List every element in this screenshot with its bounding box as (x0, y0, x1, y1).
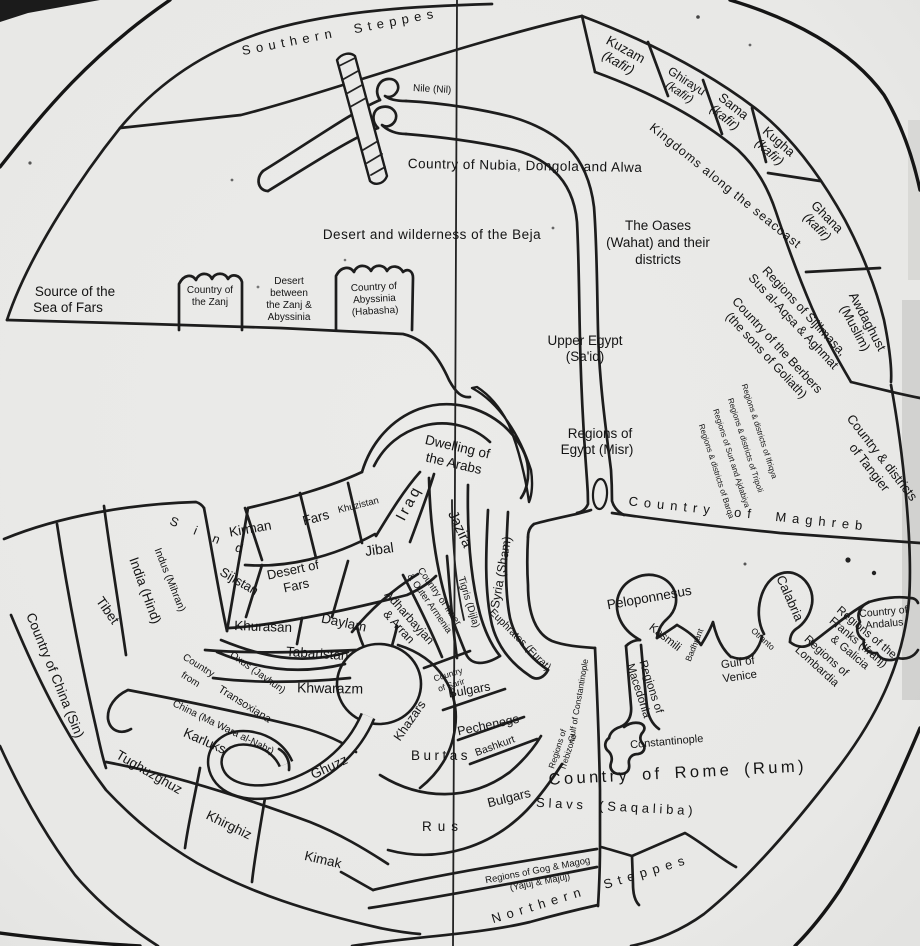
svg-text:Rus: Rus (422, 819, 464, 834)
svg-text:Regions ofEgypt (Misr): Regions ofEgypt (Misr) (561, 426, 634, 457)
svg-text:Country ofthe Zanj: Country ofthe Zanj (187, 285, 233, 308)
svg-text:Burtas: Burtas (411, 748, 471, 763)
svg-text:Country ofAbyssinia(Habasha): Country ofAbyssinia(Habasha) (350, 281, 398, 318)
svg-text:Source of theSea of Fars: Source of theSea of Fars (33, 284, 115, 315)
svg-text:Country ofAndalus: Country ofAndalus (859, 604, 909, 632)
svg-text:Nile (Nil): Nile (Nil) (413, 83, 452, 96)
svg-text:Desert and wilderness of the B: Desert and wilderness of the Beja (323, 227, 541, 242)
svg-text:Khurasan: Khurasan (234, 618, 292, 635)
svg-text:Khwarazm: Khwarazm (297, 679, 363, 696)
